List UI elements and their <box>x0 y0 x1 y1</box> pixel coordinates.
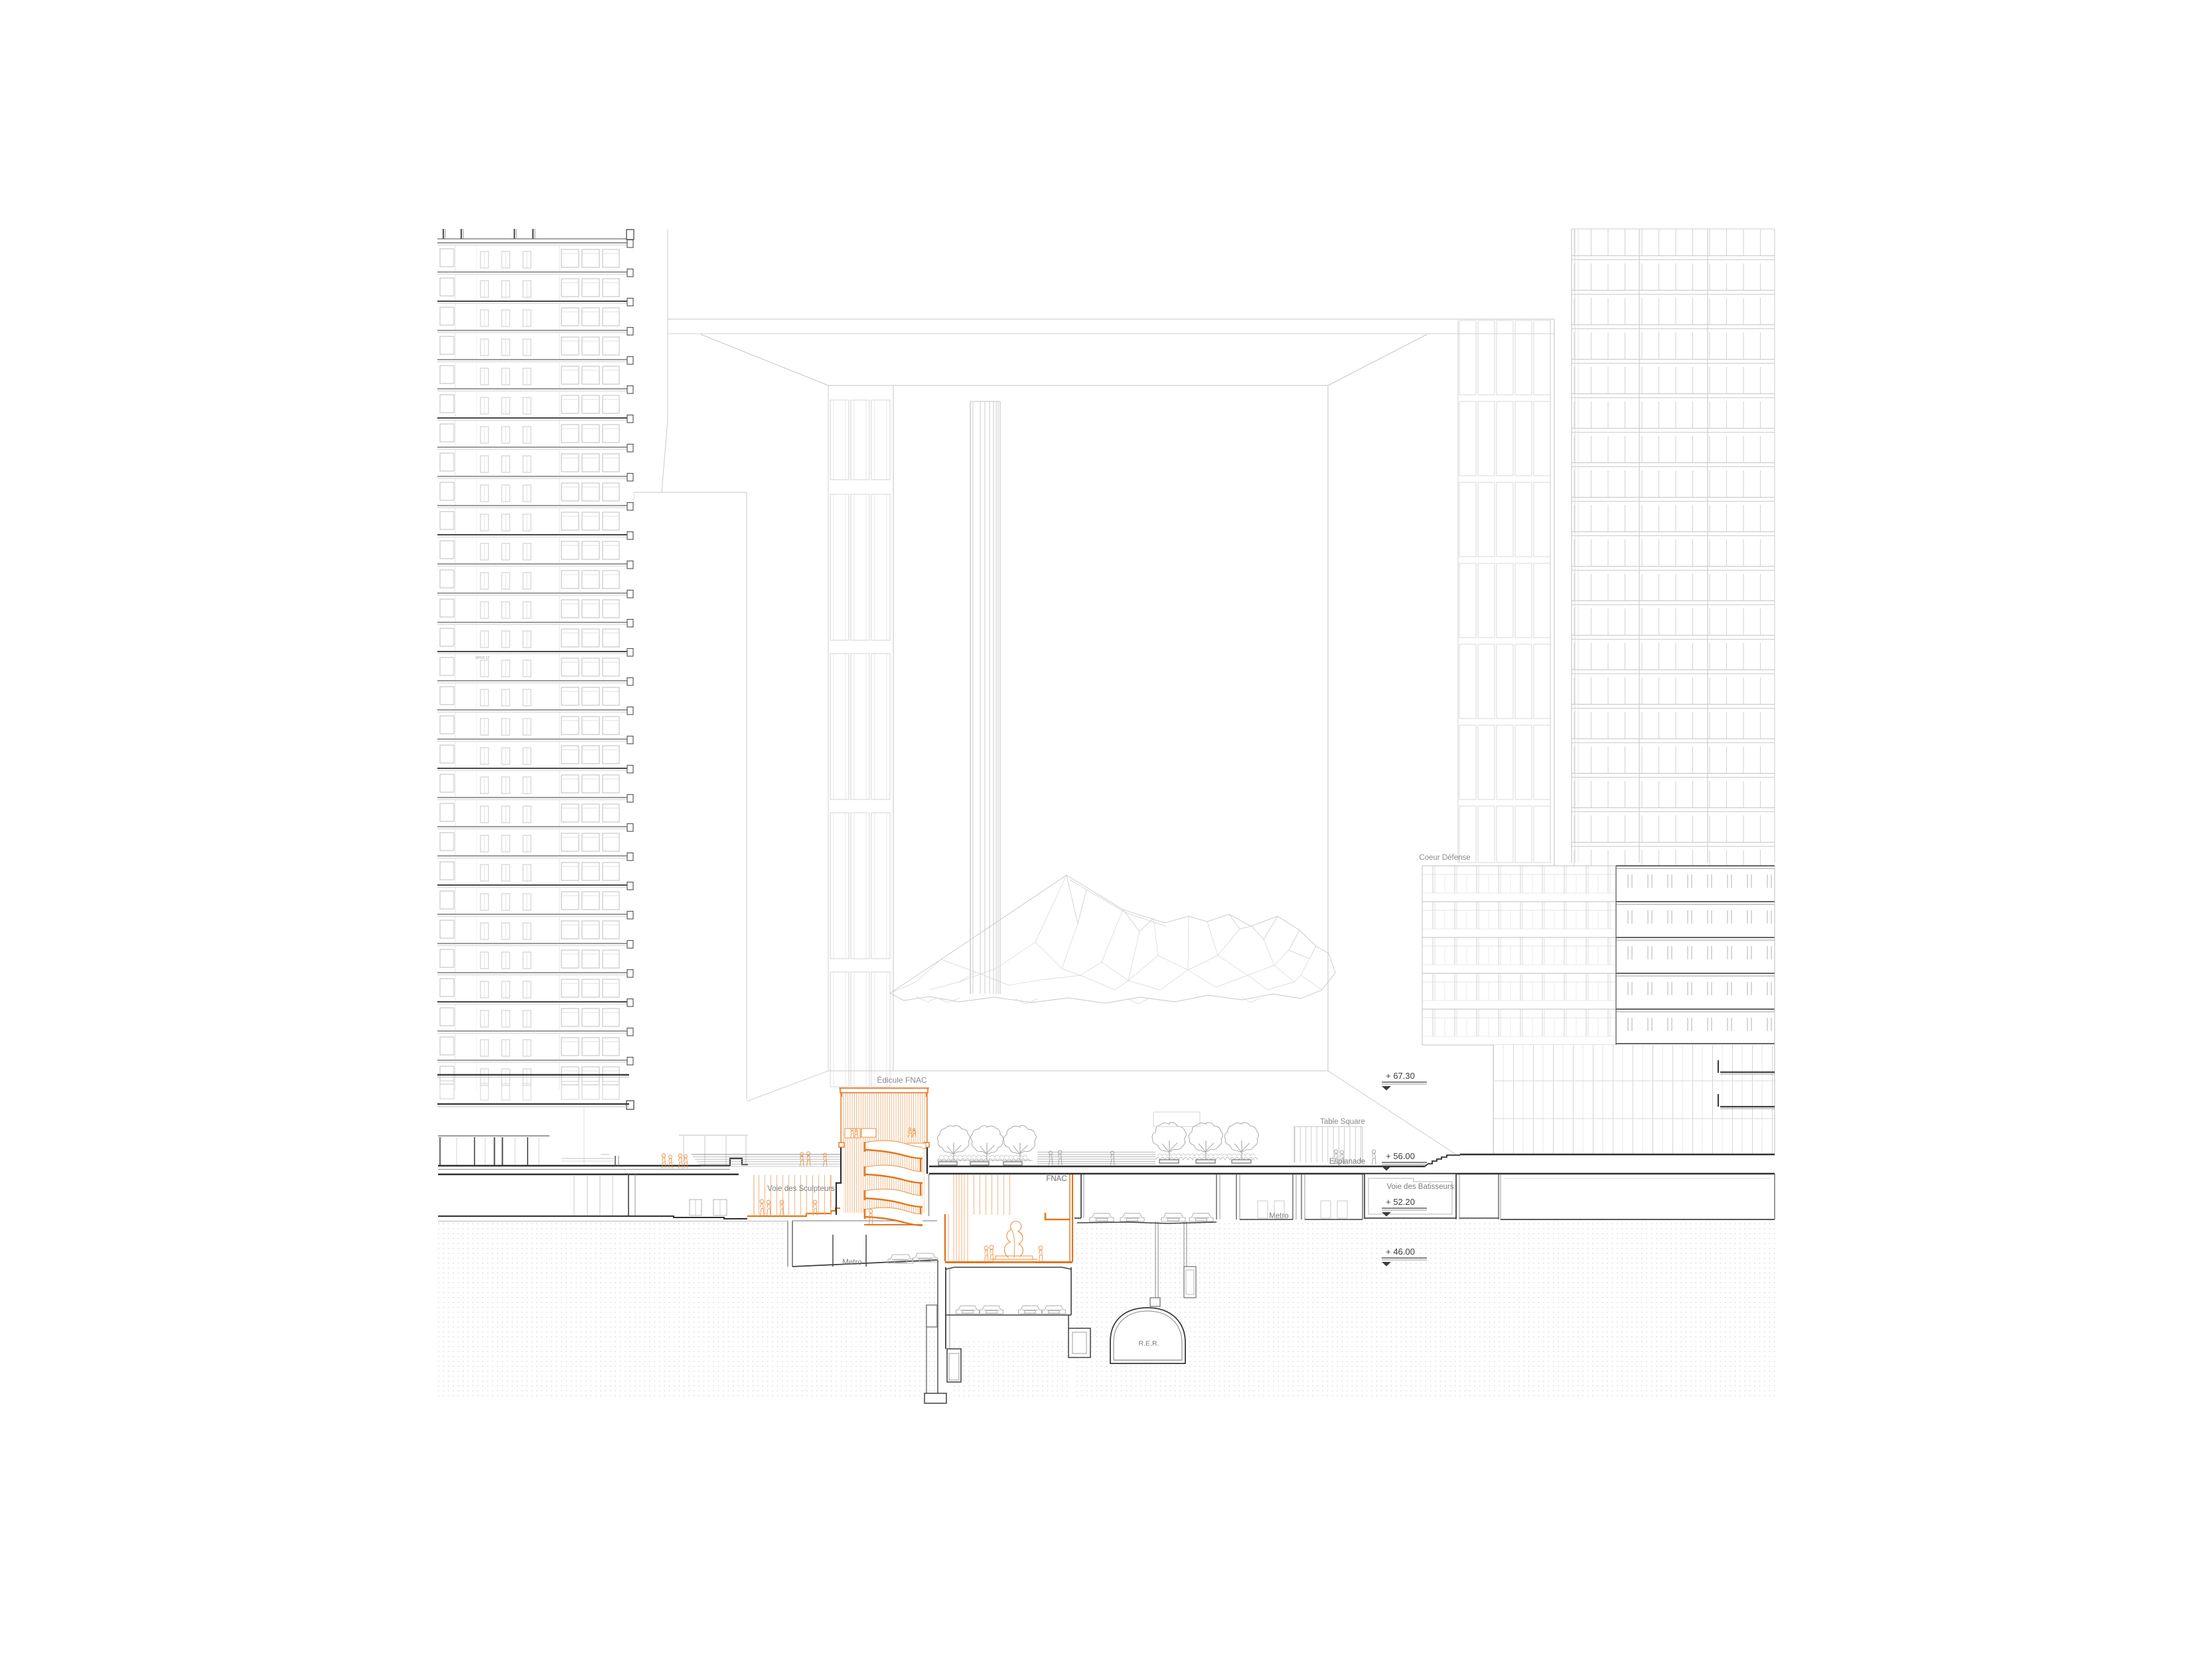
svg-text:Table Square: Table Square <box>1320 1118 1365 1126</box>
svg-text:+ 67.30: + 67.30 <box>1386 1071 1415 1081</box>
svg-text:Voie des Batisseurs: Voie des Batisseurs <box>1386 1183 1453 1191</box>
svg-text:R.E.R.: R.E.R. <box>1139 1340 1159 1348</box>
svg-text:Voie des Sculpteurs: Voie des Sculpteurs <box>767 1185 835 1193</box>
svg-text:Metro: Metro <box>842 1259 861 1267</box>
svg-text:FNAC: FNAC <box>1046 1175 1067 1183</box>
svg-text:+ 52.20: + 52.20 <box>1386 1197 1415 1207</box>
svg-text:Édicule FNAC: Édicule FNAC <box>877 1075 927 1085</box>
svg-text:Coeur Défense: Coeur Défense <box>1419 854 1470 862</box>
svg-text:+ 56.00: + 56.00 <box>1386 1151 1415 1161</box>
svg-text:+ 46.00: + 46.00 <box>1386 1247 1415 1257</box>
svg-text:OPUS 12: OPUS 12 <box>475 656 489 660</box>
